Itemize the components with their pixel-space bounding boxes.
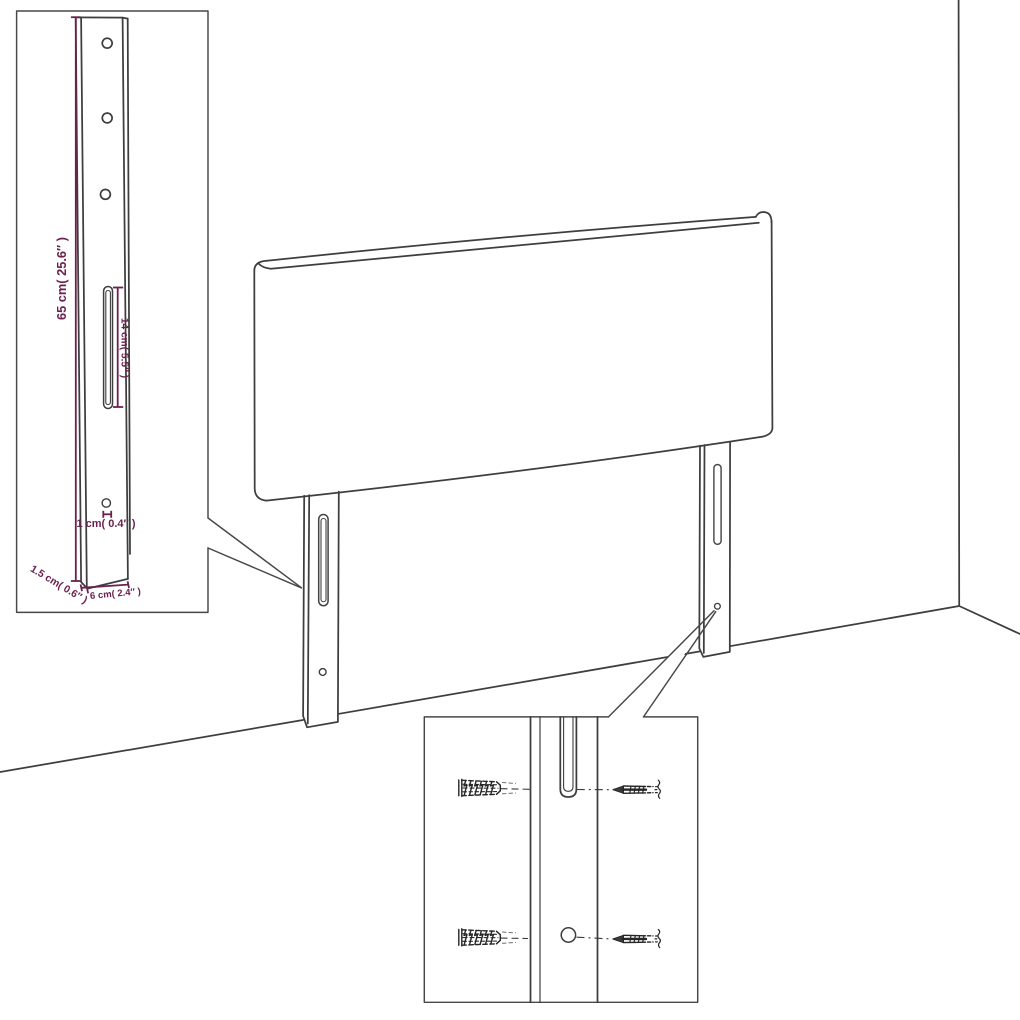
- svg-text:14 cm( 5.5″ ): 14 cm( 5.5″ ): [118, 318, 129, 378]
- svg-text:1 cm( 0.4″ ): 1 cm( 0.4″ ): [76, 518, 135, 530]
- svg-text:65 cm( 25.6″ ): 65 cm( 25.6″ ): [54, 237, 69, 320]
